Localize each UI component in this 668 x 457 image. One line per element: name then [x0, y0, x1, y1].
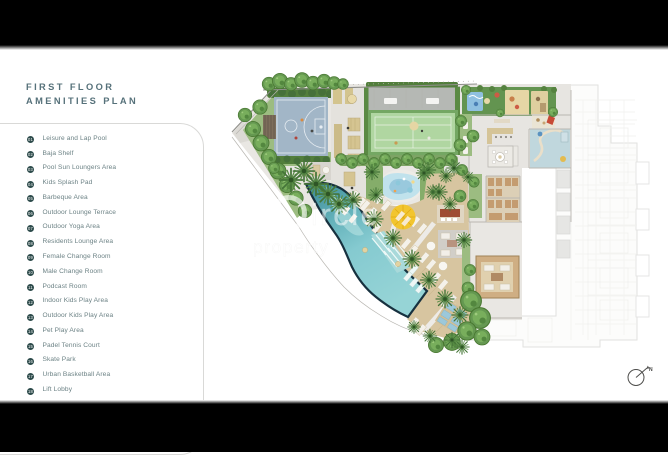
svg-text:N: N — [649, 367, 653, 373]
svg-text:ircle: ircle — [311, 197, 380, 232]
svg-text:property: property — [253, 237, 329, 257]
